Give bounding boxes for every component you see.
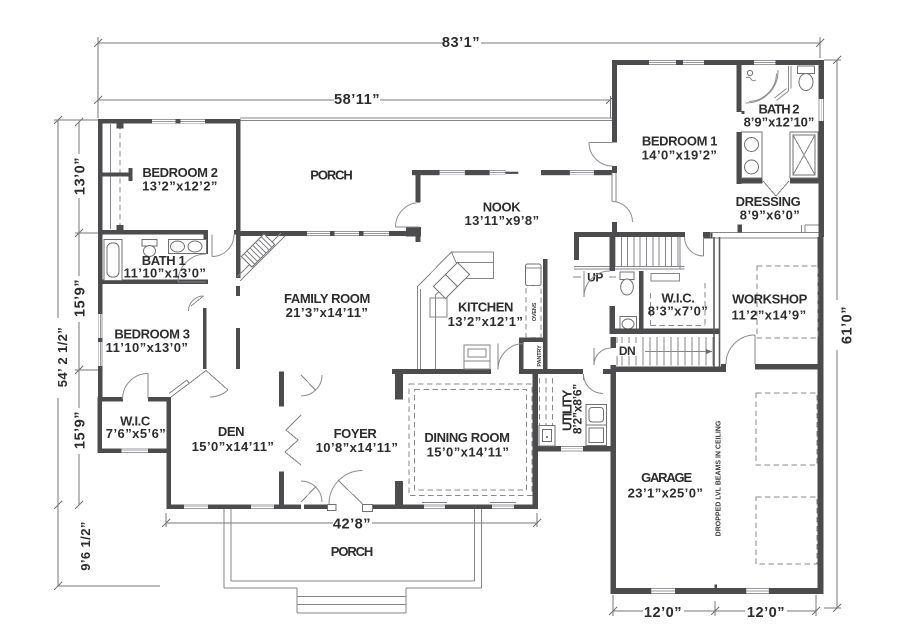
svg-text:DINING ROOM: DINING ROOM [424, 430, 509, 445]
svg-text:42’8”: 42’8” [333, 517, 371, 533]
svg-text:GARAGE: GARAGE [641, 470, 692, 485]
svg-text:9’6 1/2”: 9’6 1/2” [78, 521, 93, 570]
svg-text:DROPPED LVL BEAMS IN CEILING: DROPPED LVL BEAMS IN CEILING [716, 420, 723, 536]
svg-text:7’6”x5’6”: 7’6”x5’6” [106, 426, 166, 441]
svg-text:8’9”x6’0”: 8’9”x6’0” [740, 208, 800, 223]
svg-text:11’10”x13’0”: 11’10”x13’0” [124, 266, 207, 281]
svg-text:13’11”x9’8”: 13’11”x9’8” [464, 213, 539, 228]
svg-text:PORCH: PORCH [331, 544, 373, 559]
svg-text:WORKSHOP: WORKSHOP [732, 292, 808, 307]
svg-text:DN: DN [619, 344, 635, 358]
svg-text:OVENS: OVENS [532, 302, 538, 321]
svg-text:8’9”x12’10”: 8’9”x12’10” [744, 115, 815, 130]
svg-text:PORCH: PORCH [310, 168, 352, 183]
svg-text:10’8”x14’11”: 10’8”x14’11” [316, 440, 399, 455]
svg-text:15’0”x14’11”: 15’0”x14’11” [192, 439, 275, 454]
svg-text:12’0”: 12’0” [747, 605, 785, 621]
svg-text:58’11”: 58’11” [334, 92, 380, 108]
svg-text:FAMILY ROOM: FAMILY ROOM [284, 291, 370, 306]
svg-text:23’1”x25’0”: 23’1”x25’0” [628, 486, 704, 501]
svg-text:8’2”x8’6”: 8’2”x8’6” [571, 384, 585, 434]
svg-text:21’3”x14’11”: 21’3”x14’11” [286, 305, 369, 320]
svg-text:FOYER: FOYER [334, 426, 378, 441]
svg-text:KITCHEN: KITCHEN [458, 300, 513, 315]
svg-text:15’9”: 15’9” [73, 279, 89, 317]
svg-text:61’0”: 61’0” [840, 306, 856, 344]
svg-text:13’0”: 13’0” [73, 157, 89, 195]
svg-text:15’9”: 15’9” [73, 411, 89, 449]
svg-text:54’ 2 1/2”: 54’ 2 1/2” [55, 327, 70, 387]
svg-text:8’3”x7’0”: 8’3”x7’0” [648, 304, 708, 319]
svg-text:BEDROOM 1: BEDROOM 1 [642, 134, 717, 149]
svg-text:14’0”x19’2”: 14’0”x19’2” [642, 148, 718, 163]
svg-text:15’0”x14’11”: 15’0”x14’11” [427, 445, 510, 460]
svg-text:13’2”x12’1”: 13’2”x12’1” [448, 314, 524, 329]
svg-text:13’2”x12’2”: 13’2”x12’2” [142, 179, 218, 194]
svg-text:12’0”: 12’0” [644, 605, 682, 621]
svg-text:DEN: DEN [218, 424, 244, 439]
svg-text:83’1”: 83’1” [442, 35, 480, 51]
svg-text:11’2”x14’9”: 11’2”x14’9” [731, 308, 806, 323]
svg-text:11’10”x13’0”: 11’10”x13’0” [106, 340, 189, 355]
svg-text:PANTRY: PANTRY [537, 345, 543, 367]
